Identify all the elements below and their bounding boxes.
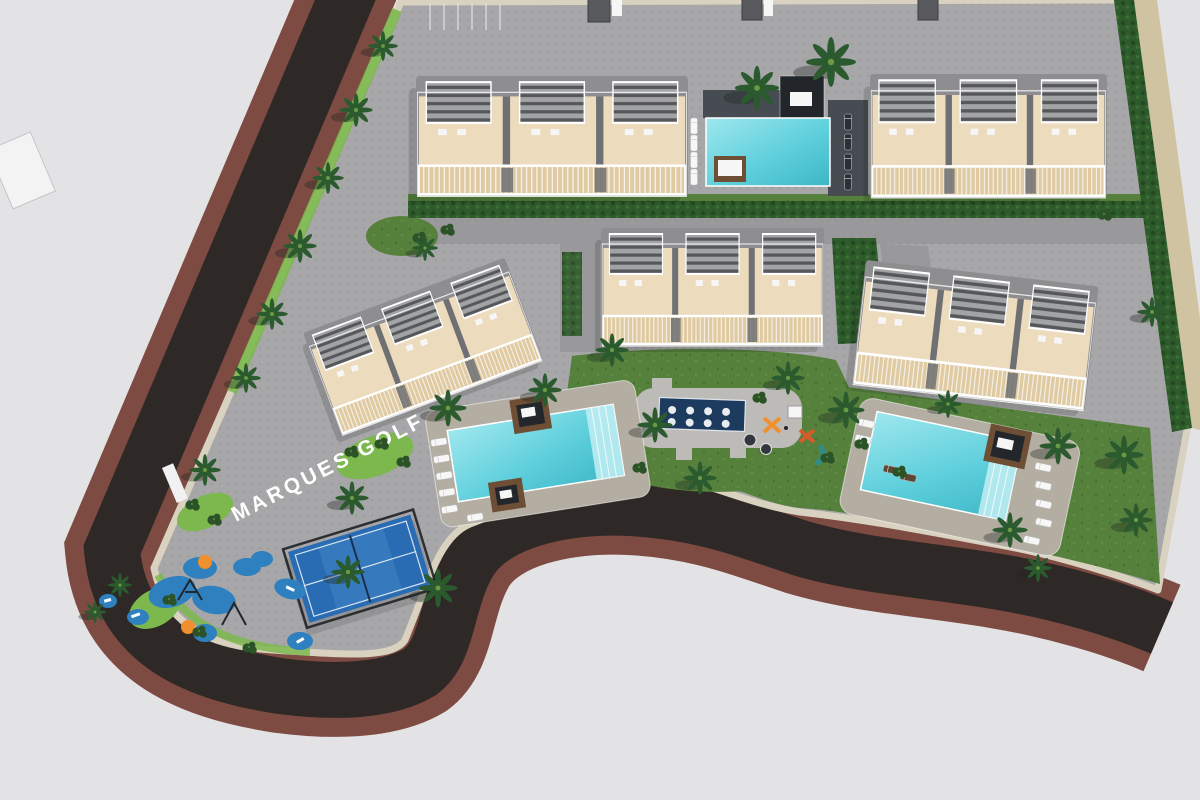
building-central (595, 228, 824, 352)
sun-lounger-dark (845, 154, 852, 170)
spa-pool (658, 398, 745, 432)
building-north-west (409, 76, 688, 202)
sun-lounger (691, 152, 698, 168)
sun-lounger (691, 135, 698, 151)
sun-lounger-dark (845, 174, 852, 190)
building-north-east (864, 74, 1107, 204)
site-plan-render: MARQUES GOLF (0, 0, 1200, 800)
sun-lounger-dark (845, 114, 852, 130)
west-hedge (562, 252, 582, 336)
round-table (744, 434, 756, 446)
spring-rider (198, 555, 212, 569)
sun-lounger-dark (845, 134, 852, 150)
sun-lounger (691, 169, 698, 185)
sun-lounger (691, 118, 698, 134)
masterplan-svg: MARQUES GOLF (0, 0, 1200, 800)
building-east (845, 259, 1099, 417)
pool-pergola (488, 478, 526, 513)
round-table (761, 444, 772, 455)
